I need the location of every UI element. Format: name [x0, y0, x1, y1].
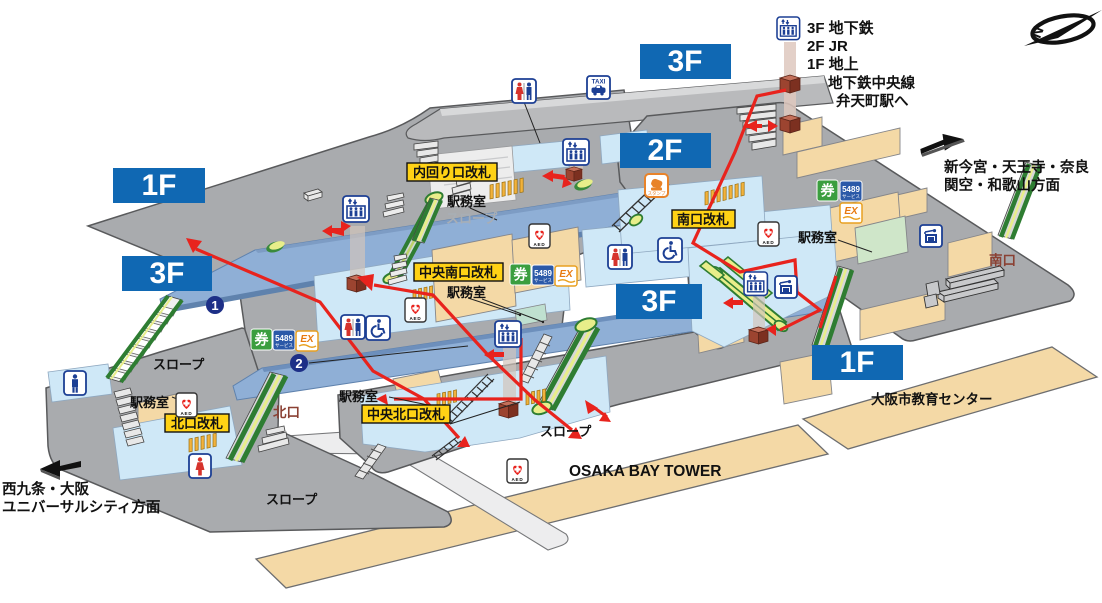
svg-text:1F: 1F [141, 169, 176, 202]
svg-text:北口改札: 北口改札 [171, 416, 223, 431]
svg-text:スロープ: スロープ [446, 211, 498, 226]
svg-text:中央北口改札: 中央北口改札 [367, 407, 445, 422]
svg-text:駅務室: 駅務室 [797, 230, 837, 245]
svg-text:西九条・大阪: 西九条・大阪 [2, 480, 89, 498]
svg-text:駅務室: 駅務室 [338, 389, 378, 404]
svg-text:南口改札: 南口改札 [677, 212, 729, 227]
svg-text:1F: 1F [839, 346, 874, 379]
svg-text:南口: 南口 [989, 252, 1016, 268]
svg-text:地下鉄中央線: 地下鉄中央線 [828, 74, 915, 92]
svg-text:関空・和歌山方面: 関空・和歌山方面 [944, 176, 1060, 194]
svg-text:駅務室: 駅務室 [446, 285, 486, 300]
svg-text:内回り口改札: 内回り口改札 [413, 165, 491, 180]
svg-text:3F: 3F [641, 285, 676, 318]
svg-text:OSAKA BAY TOWER: OSAKA BAY TOWER [569, 463, 721, 480]
svg-text:1: 1 [211, 298, 218, 313]
svg-text:弁天町駅へ: 弁天町駅へ [836, 92, 909, 110]
svg-text:ユニバーサルシティ方面: ユニバーサルシティ方面 [2, 498, 160, 516]
svg-text:駅務室: 駅務室 [446, 194, 486, 209]
svg-text:駅務室: 駅務室 [129, 395, 169, 410]
svg-text:中央南口改札: 中央南口改札 [419, 265, 497, 280]
svg-text:大阪市教育センター: 大阪市教育センター [871, 391, 993, 407]
svg-text:スロープ: スロープ [153, 357, 205, 372]
svg-text:スロープ: スロープ [266, 492, 318, 507]
svg-text:2: 2 [295, 356, 302, 371]
svg-text:スロープ: スロープ [540, 424, 592, 439]
svg-text:3F: 3F [667, 45, 702, 78]
svg-text:3F: 3F [149, 257, 184, 290]
svg-text:北口: 北口 [273, 405, 300, 420]
svg-text:1F 地上: 1F 地上 [807, 55, 859, 73]
svg-text:新今宮・天王寺・奈良: 新今宮・天王寺・奈良 [944, 158, 1089, 176]
svg-text:2F JR: 2F JR [807, 38, 848, 55]
svg-text:3F 地下鉄: 3F 地下鉄 [807, 19, 874, 37]
svg-text:2F: 2F [647, 134, 682, 167]
